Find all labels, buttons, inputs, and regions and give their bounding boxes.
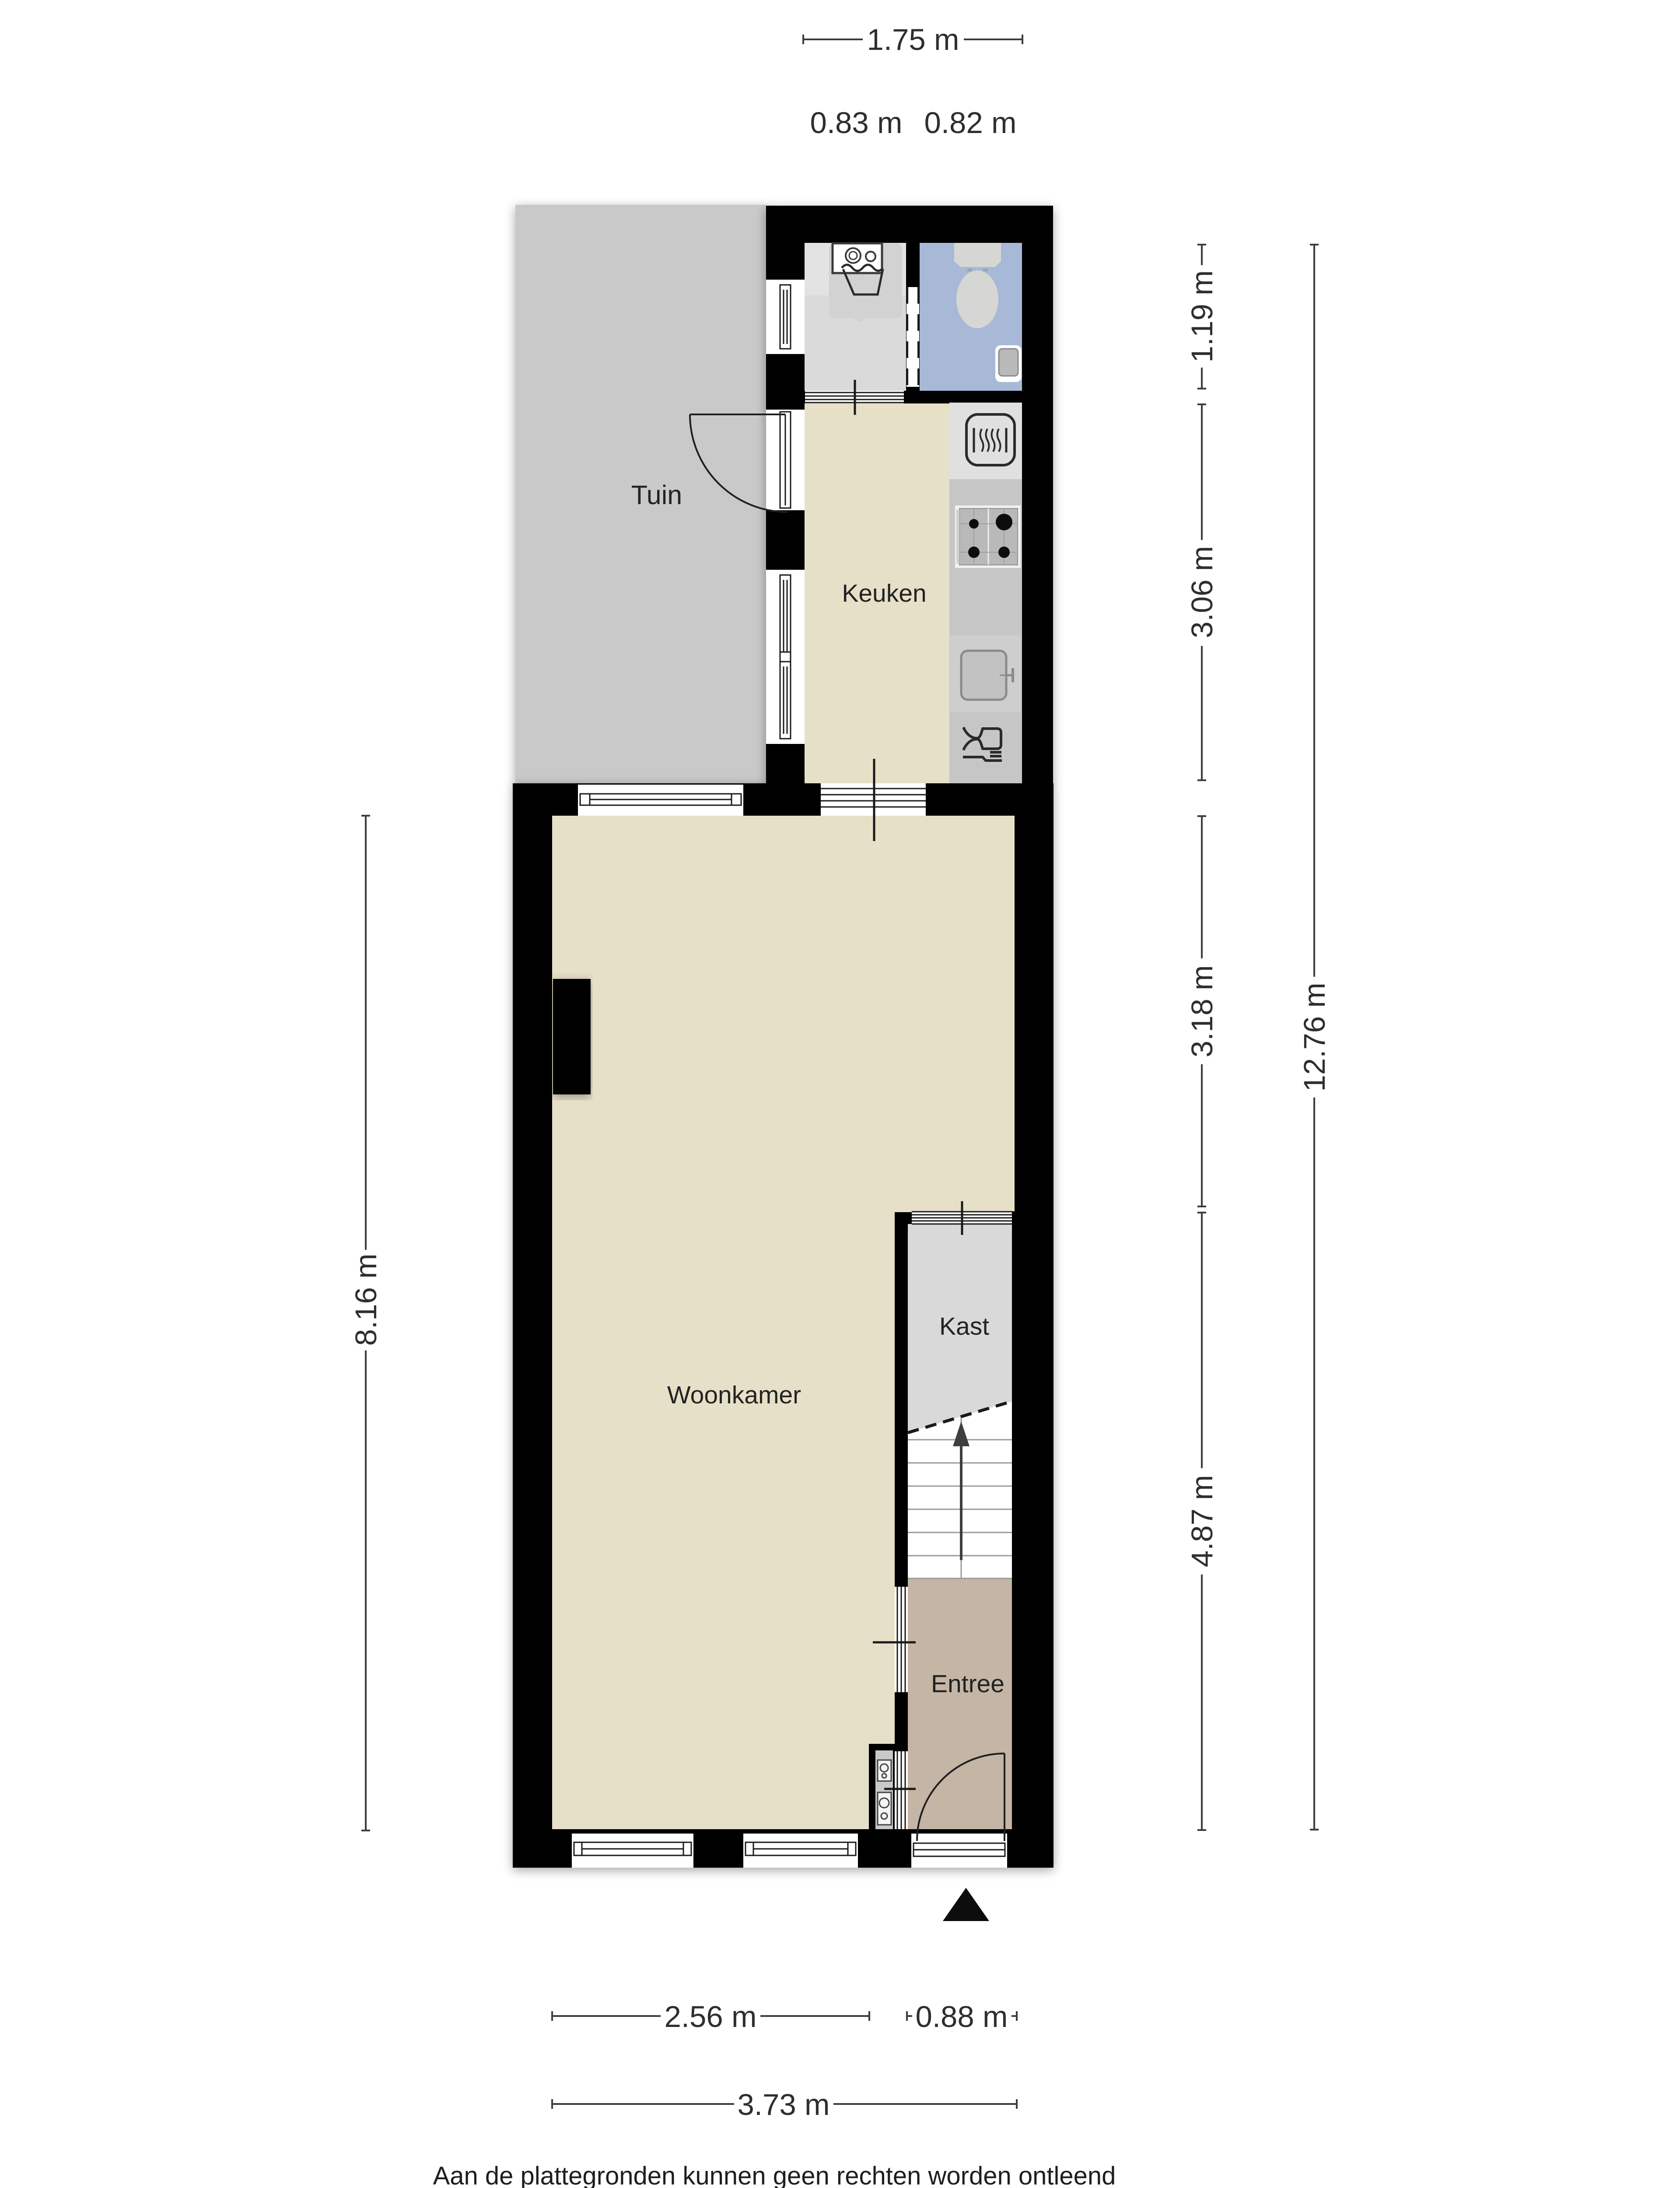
svg-text:3.73 m: 3.73 m xyxy=(738,2088,830,2121)
svg-text:Entree: Entree xyxy=(931,1670,1004,1698)
svg-text:Aan de plattegronden kunnen ge: Aan de plattegronden kunnen geen rechten… xyxy=(433,2162,1116,2188)
svg-text:4.87 m: 4.87 m xyxy=(1185,1475,1219,1567)
svg-text:Tuin: Tuin xyxy=(631,480,682,510)
svg-text:0.82 m: 0.82 m xyxy=(924,106,1017,140)
svg-text:3.06 m: 3.06 m xyxy=(1185,546,1219,638)
svg-text:3.18 m: 3.18 m xyxy=(1185,965,1219,1058)
svg-text:Kast: Kast xyxy=(939,1312,989,1340)
svg-text:Keuken: Keuken xyxy=(842,579,926,607)
svg-text:2.56 m: 2.56 m xyxy=(665,2000,757,2034)
svg-text:Woonkamer: Woonkamer xyxy=(667,1381,801,1409)
svg-text:1.75 m: 1.75 m xyxy=(867,23,959,56)
svg-text:0.88 m: 0.88 m xyxy=(916,2000,1008,2034)
svg-text:12.76 m: 12.76 m xyxy=(1298,982,1331,1091)
svg-text:8.16 m: 8.16 m xyxy=(349,1254,383,1346)
svg-text:0.83 m: 0.83 m xyxy=(810,106,903,140)
svg-text:1.19 m: 1.19 m xyxy=(1185,270,1219,363)
